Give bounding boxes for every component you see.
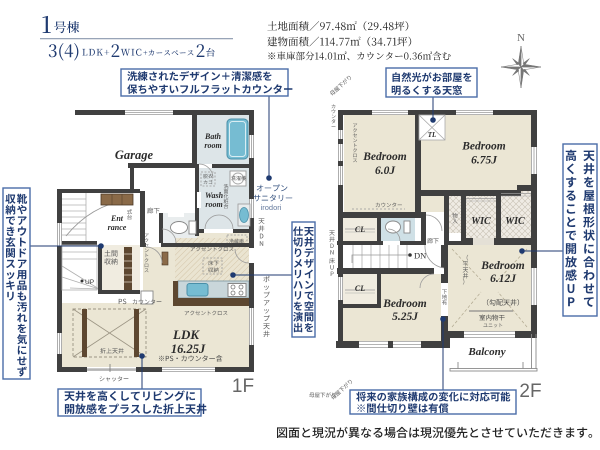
svg-text:N: N bbox=[517, 32, 525, 44]
svg-text:Bedroom: Bedroom bbox=[362, 151, 407, 163]
svg-text:rance: rance bbox=[108, 223, 127, 232]
svg-text:LDK: LDK bbox=[172, 327, 200, 342]
svg-text:DN: DN bbox=[414, 251, 426, 261]
svg-text:Garage: Garage bbox=[115, 148, 154, 162]
svg-text:Wash: Wash bbox=[205, 191, 224, 200]
svg-text:room: room bbox=[204, 141, 221, 150]
svg-text:6.0J: 6.0J bbox=[375, 165, 396, 177]
svg-text:WIC: WIC bbox=[505, 216, 525, 227]
svg-text:room: room bbox=[205, 200, 222, 209]
svg-text:1F: 1F bbox=[232, 376, 254, 397]
svg-text:Bedroom: Bedroom bbox=[480, 260, 525, 272]
svg-text:irodori: irodori bbox=[261, 203, 282, 212]
svg-text:Bedroom: Bedroom bbox=[382, 298, 427, 310]
svg-text:CL: CL bbox=[355, 284, 365, 293]
svg-text:CL: CL bbox=[355, 225, 365, 234]
svg-text:UP: UP bbox=[85, 279, 94, 286]
svg-text:5.25J: 5.25J bbox=[392, 311, 419, 323]
svg-text:6.12J: 6.12J bbox=[490, 273, 517, 285]
svg-text:16.25J: 16.25J bbox=[171, 342, 206, 356]
svg-text:Balcony: Balcony bbox=[467, 346, 505, 358]
svg-text:2F: 2F bbox=[519, 381, 541, 402]
svg-text:6.75J: 6.75J bbox=[471, 155, 498, 167]
svg-text:TL: TL bbox=[428, 131, 437, 139]
svg-text:Bath: Bath bbox=[204, 132, 222, 141]
svg-text:Bedroom: Bedroom bbox=[461, 141, 506, 153]
svg-text:Ent: Ent bbox=[110, 214, 124, 223]
svg-text:WIC: WIC bbox=[471, 216, 491, 227]
